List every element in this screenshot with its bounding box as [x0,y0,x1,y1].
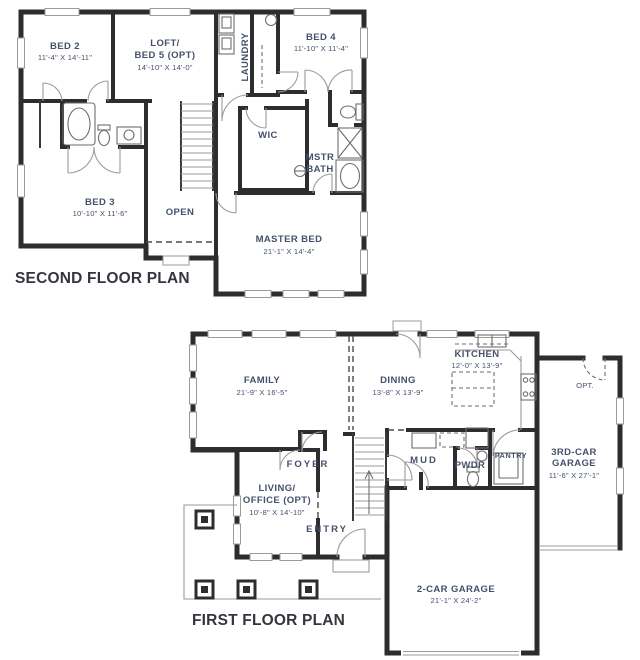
room-label-2-car-garage: 2-CAR GARAGE [417,584,495,595]
room-label-mstr-bath-line2: BATH [306,164,333,175]
room-dims-family: 21'-9" X 16'-5" [237,388,288,397]
range-icon [521,374,536,400]
room-dims-2-car-garage: 21'-1" X 24'-2" [431,596,482,605]
room-dims-master-bed: 21'-1" X 14'-4" [264,247,315,256]
porch-column [196,581,213,598]
second-floor-plan-title: SECOND FLOOR PLAN [15,270,190,287]
room-label-entry: ENTRY [306,524,348,535]
room-label-pantry: PANTRY [495,451,527,460]
second-floor-plan: BED 2 11'-4" X 14'-11" LOFT/ BED 5 (OPT)… [15,9,368,298]
master-shower-icon [338,128,362,158]
hall-bath-toilet-icon [98,125,110,146]
dryer-icon [219,35,234,54]
room-dims-living-office: 10'-8" X 14'-10" [249,508,305,517]
room-label-loft-line2: BED 5 (OPT) [135,50,196,61]
master-sink-icon [294,166,306,177]
room-dims-dining: 13'-8" X 13'-9" [373,388,424,397]
room-label-laundry: LAUNDRY [240,32,251,81]
porch-column [300,581,317,598]
stairs-first-floor [353,434,386,520]
stairs-second-floor [181,102,213,190]
third-car-garage-door [539,546,618,550]
entry-stoop [333,560,369,572]
optional-door-dashed-arc [583,358,605,380]
room-label-wic: WIC [258,130,278,141]
floor-plan-sheet: BED 2 11'-4" X 14'-11" LOFT/ BED 5 (OPT)… [0,0,640,660]
room-label-bed2: BED 2 [50,41,80,52]
room-label-living-office-line1: LIVING/ [258,483,295,494]
master-tub-icon [336,160,363,192]
water-heater-icon [266,15,277,26]
hall-bath-sink-icon [117,127,141,144]
porch-column [238,581,255,598]
room-dims-loft: 14'-10" X 14'-0" [137,63,193,72]
room-label-family: FAMILY [244,375,281,386]
room-label-kitchen: KITCHEN [454,349,499,360]
master-toilet-icon [341,104,364,120]
first-floor-plan: FAMILY 21'-9" X 16'-5" DINING 13'-8" X 1… [184,321,624,656]
room-label-pwdr: PWDR [455,460,486,471]
floor-plan-drawing: BED 2 11'-4" X 14'-11" LOFT/ BED 5 (OPT)… [0,0,640,660]
room-label-open: OPEN [166,207,195,218]
room-dims-bed4: 11'-10" X 11'-4" [294,44,348,53]
label-opt-door: OPT. [576,381,594,390]
room-label-master-bed: MASTER BED [256,234,323,245]
washer-icon [219,14,234,33]
room-dims-bed3: 10'-10" X 11'-6" [73,209,128,218]
family-dining-dashed-divider [318,336,408,518]
room-label-loft-line1: LOFT/ [150,38,179,49]
room-label-foyer: FOYER [287,459,330,470]
room-label-3rd-car-garage-line1: 3RD-CAR [551,447,597,458]
room-dims-bed2: 11'-4" X 14'-11" [38,53,92,62]
room-label-living-office-line2: OFFICE (OPT) [243,495,311,506]
room-label-dining: DINING [380,375,416,386]
room-dims-3rd-car-garage: 11'-6" X 27'-1" [549,471,600,480]
room-dims-kitchen: 12'-0" X 13'-9" [452,361,503,370]
two-car-garage-door [401,650,521,656]
kitchen-island [452,372,494,406]
hall-bath-tub-icon [63,103,95,145]
room-label-mud: MUD [410,455,438,466]
porch-column [196,511,213,528]
room-label-3rd-car-garage-line2: GARAGE [552,458,596,469]
room-label-bed4: BED 4 [306,32,336,43]
room-label-bed3: BED 3 [85,197,115,208]
first-floor-plan-title: FIRST FLOOR PLAN [192,612,345,629]
room-label-mstr-bath-line1: MSTR [306,152,335,163]
